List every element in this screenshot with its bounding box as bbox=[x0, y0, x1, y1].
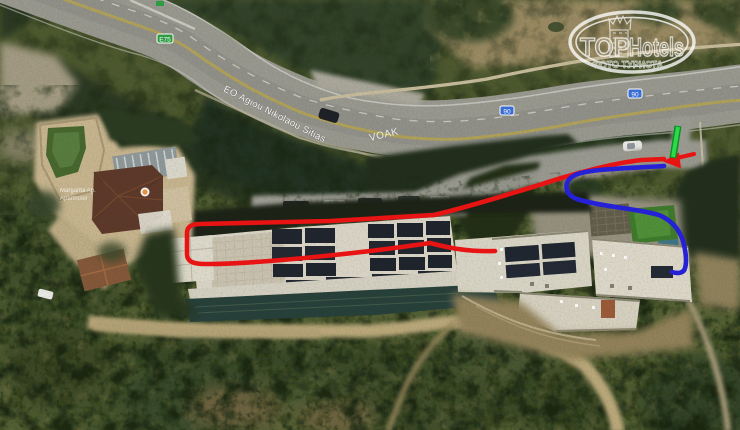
svg-text:Hotels: Hotels bbox=[629, 32, 684, 62]
svg-text:ФОТО ТУРИСТА: ФОТО ТУРИСТА bbox=[592, 59, 663, 71]
